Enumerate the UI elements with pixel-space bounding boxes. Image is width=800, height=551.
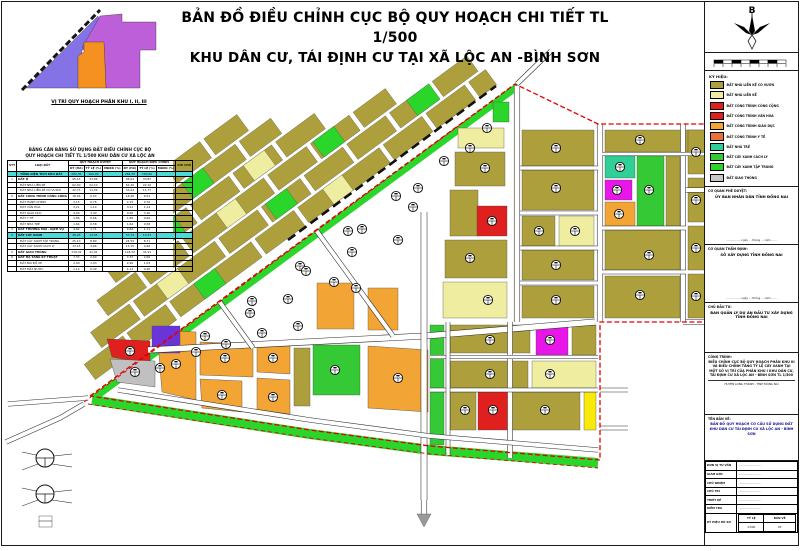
yellow-block — [584, 392, 596, 430]
land-use-balance-table: BẢNG CÂN BẰNG SỬ DỤNG ĐẤT ĐIỀU CHỈNH CỤC… — [7, 147, 173, 272]
inset-canvas — [20, 4, 176, 100]
lot-code — [638, 292, 641, 293]
drawing-name: BẢN ĐỒ QUY HOẠCH CƠ CẤU SỬ DỤNG ĐẤT KHU … — [708, 422, 795, 436]
lot-code — [647, 252, 650, 253]
scale-segment — [759, 60, 768, 63]
lot-symbol — [612, 185, 621, 194]
drawing-label: TÊN BẢN VẼ: — [708, 417, 795, 421]
lot-code — [332, 279, 335, 280]
lot-code — [554, 145, 557, 146]
land-table-title-1: BẢNG CÂN BẰNG SỬ DỤNG ĐẤT ĐIỀU CHỈNH CỤC… — [7, 147, 173, 152]
appraisal-signature-line: ……………, ngày … tháng … năm …… — [708, 296, 795, 300]
lot-symbol — [247, 296, 256, 305]
legend-section: KÝ HIỆU: ĐẤT NHÀ LIỀN KẾ CÓ VƯỜNĐẤT NHÀ … — [705, 71, 798, 187]
personnel-row: GIÁM ĐỐC…………………… — [706, 470, 798, 479]
legend-swatch — [710, 81, 724, 89]
location-inset-map — [20, 4, 176, 100]
plan-sheet: { "title": { "line1": "BẢN ĐỒ ĐIỀU CHỈNH… — [0, 0, 800, 547]
lot-symbol — [191, 347, 200, 356]
lot-symbol — [551, 295, 560, 304]
lot-code — [491, 407, 494, 408]
legend-label: ĐẤT CÔNG TRÌNH GIÁO DỤC — [727, 124, 775, 128]
scale-bar — [708, 56, 796, 70]
legend-item: ĐẤT CÔNG TRÌNH VĂN HÓA — [710, 112, 795, 120]
lot-code — [223, 355, 226, 356]
lot-code — [548, 337, 551, 338]
lot-code — [694, 293, 697, 294]
lot-code — [554, 185, 557, 186]
lot-code — [617, 211, 620, 212]
lot-code — [333, 367, 336, 368]
lot-symbol — [644, 250, 653, 259]
lot-symbol — [245, 308, 254, 317]
scale-segment — [750, 60, 759, 63]
legend-item: ĐẤT NHÀ TRẺ — [710, 143, 795, 151]
lot-symbol — [480, 163, 489, 172]
personnel-table: ĐƠN VỊ TƯ VẤN……………………GIÁM ĐỐC……………………CHỦ… — [705, 461, 798, 533]
lot-symbol — [301, 266, 310, 275]
lot-symbol — [200, 331, 209, 340]
legend-item: ĐẤT CÂY XANH CÁCH LY — [710, 153, 795, 161]
legend-label: ĐẤT NHÀ LIỀN KẾ CÓ VƯỜN — [727, 83, 775, 87]
lot-symbol — [391, 191, 400, 200]
lot-symbol — [635, 135, 644, 144]
project-box: CÔNG TRÌNH: ĐIỀU CHỈNH CỤC BỘ QUY HOẠCH … — [705, 353, 798, 415]
legend-item: ĐẤT NHÀ LIỀN KẾ — [710, 91, 795, 99]
legend-swatch — [710, 163, 724, 171]
lot-code — [618, 164, 621, 165]
parcel — [450, 190, 478, 236]
north-arrow-section: B — [705, 1, 798, 53]
lot-symbol — [545, 335, 554, 344]
approval-label: CƠ QUAN PHÊ DUYỆT: — [708, 189, 795, 193]
personnel-row: CHỦ NHIỆM…………………… — [706, 479, 798, 488]
lot-code — [271, 355, 274, 356]
line — [52, 500, 72, 503]
lot-code — [694, 245, 697, 246]
block-symbol — [39, 516, 52, 527]
approval-signature-line: ……………, ngày … tháng … năm …… — [708, 238, 795, 242]
lot-code — [396, 375, 399, 376]
lot-code — [360, 226, 363, 227]
title-line-2: KHU DÂN CƯ, TÁI ĐỊNH CƯ TẠI XÃ LỘC AN -B… — [170, 49, 620, 69]
lot-code — [548, 371, 551, 372]
road — [6, 404, 84, 442]
lot-code — [350, 249, 353, 250]
lot-code — [483, 165, 486, 166]
lot-symbol — [691, 147, 700, 156]
lot-symbol — [483, 295, 492, 304]
lot-code — [615, 187, 618, 188]
lot-symbol — [635, 290, 644, 299]
lot-symbol — [644, 185, 653, 194]
lot-code — [694, 197, 697, 198]
parcel — [605, 230, 680, 270]
lot-symbol — [357, 224, 366, 233]
school-block — [317, 283, 354, 329]
lot-symbol — [691, 195, 700, 204]
lot-symbol-legend — [36, 449, 54, 467]
lot-code — [647, 187, 650, 188]
lot-code — [394, 193, 397, 194]
lot-symbol — [155, 363, 164, 372]
lot-symbol — [460, 405, 469, 414]
line — [22, 488, 36, 491]
scale-segment — [768, 60, 777, 63]
lot-symbol — [545, 369, 554, 378]
lot-code — [298, 263, 301, 264]
personnel-row: ĐƠN VỊ TƯ VẤN…………………… — [706, 462, 798, 471]
personnel-row: KIỂM TRA…………………… — [706, 504, 798, 513]
scale-segment — [741, 60, 750, 63]
investor-name: BAN QUẢN LÝ DỰ ÁN ĐẦU TƯ XÂY DỰNG TỈNH Đ… — [708, 311, 795, 319]
legend-item: ĐẤT CÔNG TRÌNH Y TẾ — [710, 132, 795, 140]
lot-symbol — [534, 226, 543, 235]
lot-code — [354, 285, 357, 286]
lot-symbol — [488, 405, 497, 414]
lot-symbol — [130, 367, 139, 376]
lot-code — [638, 137, 641, 138]
lot-code — [490, 218, 493, 219]
legend-item: ĐẤT CÔNG TRÌNH CÔNG CỘNG — [710, 102, 795, 110]
legend-list: ĐẤT NHÀ LIỀN KẾ CÓ VƯỜNĐẤT NHÀ LIỀN KẾĐẤ… — [708, 81, 795, 182]
legend-label: ĐẤT NHÀ LIỀN KẾ — [727, 93, 757, 97]
legend-swatch — [710, 102, 724, 110]
lot-symbol — [551, 143, 560, 152]
inset-caption: VỊ TRÍ QUY HOẠCH PHÂN KHU I, II, III — [24, 100, 174, 105]
lot-symbol — [540, 405, 549, 414]
personnel-row: CHỦ TRÌ…………………… — [706, 487, 798, 496]
project-name: ĐIỀU CHỈNH CỤC BỘ QUY HOẠCH PHÂN KHU III… — [708, 360, 795, 378]
lot-symbol — [220, 353, 229, 362]
lot-code — [133, 369, 136, 370]
green-strip-v — [430, 325, 444, 445]
investor-label: CHỦ ĐẦU TƯ: — [708, 305, 795, 309]
lot-symbol — [393, 373, 402, 382]
parcel — [353, 89, 396, 128]
lot-code — [194, 349, 197, 350]
lot-code — [537, 228, 540, 229]
legend-item: ĐẤT GIAO THÔNG — [710, 174, 795, 182]
line — [52, 464, 72, 467]
project-location: HUYỆN LONG THÀNH - TỈNH ĐỒNG NAI — [708, 380, 795, 386]
lot-code — [346, 228, 349, 229]
lot-symbol — [570, 226, 579, 235]
page-title: BẢN ĐỒ ĐIỀU CHỈNH CỤC BỘ QUY HOẠCH CHI T… — [170, 8, 620, 68]
legend-label: ĐẤT CÔNG TRÌNH CÔNG CỘNG — [727, 104, 779, 108]
lot-code — [416, 185, 419, 186]
lot-symbol — [413, 183, 422, 192]
lot-code — [248, 310, 251, 311]
line — [22, 464, 38, 470]
title-block-panel: B KÝ HIỆU: ĐẤT NHÀ LIỀN KẾ CÓ VƯỜNĐẤT NH… — [704, 1, 798, 546]
parcel — [455, 152, 505, 186]
legend-label: ĐẤT CÔNG TRÌNH VĂN HÓA — [727, 114, 774, 118]
appraisal-box: CƠ QUAN THẨM ĐỊNH: SỞ XÂY DỰNG TỈNH ĐỒNG… — [705, 245, 798, 303]
lot-symbol — [330, 365, 339, 374]
lot-code — [271, 394, 274, 395]
lot-symbol — [257, 328, 266, 337]
lot-code — [468, 145, 471, 146]
lot-symbol — [615, 162, 624, 171]
lot-code — [286, 296, 289, 297]
land-table-title-2: QUY HOẠCH CHI TIẾT TL 1/500 KHU DÂN CƯ X… — [7, 153, 173, 158]
personnel-footer: KÝ HIỆU HỒ SƠ TỶ LỆ BẢN VẼ 1/500 03 — [706, 513, 798, 532]
lot-symbol — [408, 202, 417, 211]
appraisal-label: CƠ QUAN THẨM ĐỊNH: — [708, 247, 795, 251]
lot-code — [304, 268, 307, 269]
lot-symbol — [393, 235, 402, 244]
lot-code — [442, 158, 445, 159]
parcel — [458, 128, 504, 148]
scale-segment — [714, 60, 723, 63]
drawing-name-box: TÊN BẢN VẼ: BẢN ĐỒ QUY HOẠCH CƠ CẤU SỬ D… — [705, 415, 798, 461]
legend-swatch — [710, 174, 724, 182]
lot-symbol — [551, 260, 560, 269]
lot-code — [463, 407, 466, 408]
parcel — [572, 325, 596, 355]
legend-item: ĐẤT CÂY XANH TẬP TRUNG — [710, 163, 795, 171]
lot-code — [485, 125, 488, 126]
legend-label: ĐẤT CÂY XANH CÁCH LY — [727, 155, 768, 159]
line — [54, 454, 72, 456]
parcel — [294, 348, 310, 406]
lot-symbol — [465, 253, 474, 262]
lot-symbol — [351, 283, 360, 292]
title-line-1: BẢN ĐỒ ĐIỀU CHỈNH CỤC BỘ QUY HOẠCH CHI T… — [170, 8, 620, 49]
lot-symbol — [293, 321, 302, 330]
legend-item: ĐẤT NHÀ LIỀN KẾ CÓ VƯỜN — [710, 81, 795, 89]
project-label: CÔNG TRÌNH: — [708, 355, 795, 359]
lot-code — [694, 149, 697, 150]
lot-symbol — [221, 339, 230, 348]
line — [22, 452, 36, 455]
lot-symbol — [551, 183, 560, 192]
legend-label: ĐẤT GIAO THÔNG — [727, 176, 757, 180]
land-table-row: ĐẤT MẶT NƯỚC1,120,401,120,40 — [8, 266, 193, 272]
lot-code — [128, 348, 131, 349]
parcel — [204, 114, 249, 154]
investor-box: CHỦ ĐẦU TƯ: BAN QUẢN LÝ DỰ ÁN ĐẦU TƯ XÂY… — [705, 303, 798, 353]
lot-code — [468, 255, 471, 256]
legend-swatch — [710, 153, 724, 161]
lot-code — [396, 237, 399, 238]
appraisal-name: SỞ XÂY DỰNG TỈNH ĐỒNG NAI — [708, 253, 795, 257]
lot-symbol — [343, 226, 352, 235]
lot-code — [158, 365, 161, 366]
legend-item: ĐẤT CÔNG TRÌNH GIÁO DỤC — [710, 122, 795, 130]
lot-code — [203, 333, 206, 334]
lot-symbol — [614, 209, 623, 218]
legend-swatch — [710, 112, 724, 120]
lot-code — [250, 298, 253, 299]
north-arrow-icon: B — [708, 3, 796, 51]
lot-code — [554, 262, 557, 263]
lot-code — [554, 297, 557, 298]
lot-code — [573, 228, 576, 229]
lot-code — [486, 297, 489, 298]
lot-symbol — [217, 390, 226, 399]
parcel — [666, 156, 680, 226]
lot-code — [543, 407, 546, 408]
lot-symbol — [465, 143, 474, 152]
line — [22, 500, 38, 506]
lot-symbol — [485, 369, 494, 378]
parcel — [443, 282, 507, 318]
lot-symbol — [125, 346, 134, 355]
lot-symbol-legend — [36, 485, 54, 503]
lot-code — [260, 330, 263, 331]
approval-box: CƠ QUAN PHÊ DUYỆT: ỦY BAN NHÂN DÂN TỈNH … — [705, 187, 798, 245]
lot-symbol — [283, 294, 292, 303]
lot-code — [411, 204, 414, 205]
lot-code — [220, 392, 223, 393]
approval-name: ỦY BAN NHÂN DÂN TỈNH ĐỒNG NAI — [708, 195, 795, 199]
lot-symbol — [268, 392, 277, 401]
scale-segment — [732, 60, 741, 63]
legend-swatch — [710, 132, 724, 140]
lot-symbol — [268, 353, 277, 362]
lot-code — [296, 323, 299, 324]
lot-code — [174, 361, 177, 362]
lot-symbol — [439, 156, 448, 165]
personnel-row: THIẾT KẾ…………………… — [706, 496, 798, 505]
parcel — [532, 361, 596, 388]
legend-swatch — [710, 143, 724, 151]
scale-segment — [723, 60, 732, 63]
line — [54, 490, 72, 492]
scale-segment — [777, 60, 786, 63]
land-table-grid: STT LOẠI ĐẤT QUY HOẠCH DUYỆTQUY HOẠCH ĐI… — [7, 160, 193, 273]
road-arrow — [417, 514, 431, 527]
lot-symbol — [347, 247, 356, 256]
legend-label: ĐẤT NHÀ TRẺ — [727, 145, 750, 149]
lot-symbol — [691, 243, 700, 252]
lot-code — [224, 341, 227, 342]
lot-symbol — [482, 123, 491, 132]
lot-symbol — [329, 277, 338, 286]
lot-symbol — [487, 216, 496, 225]
parcel — [493, 102, 509, 122]
legend-title: KÝ HIỆU: — [709, 74, 795, 79]
lot-symbol — [691, 291, 700, 300]
parcel — [445, 240, 507, 278]
legend-swatch — [710, 91, 724, 99]
lot-code — [488, 337, 491, 338]
lot-symbol — [485, 335, 494, 344]
scale-bar-section — [705, 53, 798, 71]
legend-label: ĐẤT CÔNG TRÌNH Y TẾ — [727, 135, 766, 139]
lot-symbol — [171, 359, 180, 368]
personnel-table-section: ĐƠN VỊ TƯ VẤN……………………GIÁM ĐỐC……………………CHỦ… — [705, 461, 798, 533]
legend-label: ĐẤT CÂY XANH TẬP TRUNG — [727, 165, 774, 169]
lot-code — [488, 371, 491, 372]
legend-swatch — [710, 122, 724, 130]
